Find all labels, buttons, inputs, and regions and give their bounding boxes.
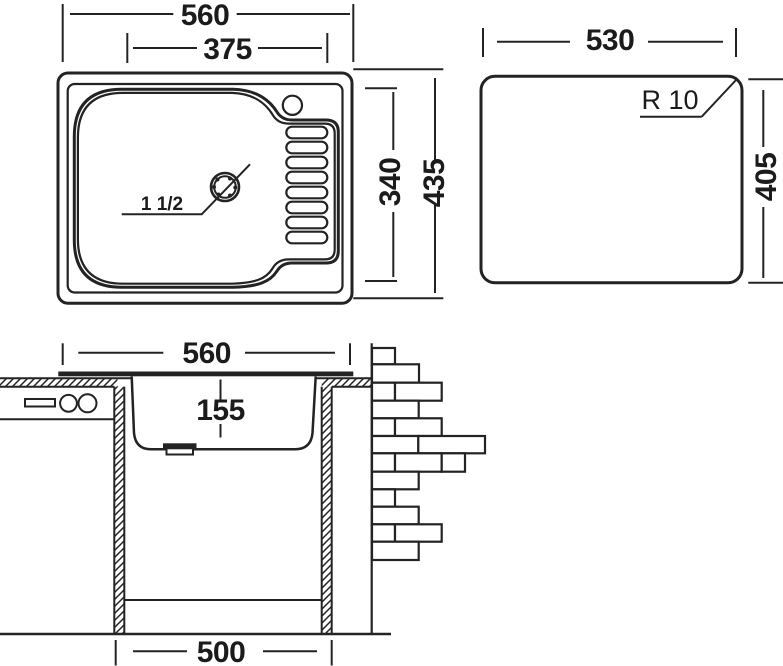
drain-body-section (167, 448, 194, 454)
corner-radius-callout: R 10 (640, 80, 737, 117)
handle-symbol (25, 399, 55, 407)
cutout-outline (481, 76, 742, 282)
cabinet-right-panel (322, 387, 332, 634)
dim-top-bowl-depth-label: 340 (374, 158, 407, 207)
worktop-left-hatch (0, 378, 118, 386)
bowl-outline-outer (74, 89, 338, 287)
adjacent-front-detail (0, 394, 114, 419)
cabinet-left-panel (114, 387, 124, 634)
sink-rim-section (58, 372, 353, 377)
sink-inner-edge (68, 84, 343, 293)
dim-section-bowl-depth: 155 (196, 380, 245, 438)
dim-section-cabinet-width: 500 (116, 636, 332, 666)
dim-section-bowl-depth-label: 155 (196, 394, 245, 427)
drain-size-label: 1 1/2 (141, 194, 183, 215)
drawing-svg: 1 1/2 560 375 340 (0, 0, 783, 666)
knob-symbol-left (60, 395, 77, 412)
drainer-ribs (286, 127, 327, 244)
dim-cutout-width-label: 530 (586, 24, 635, 57)
knob-symbol-right (79, 394, 97, 412)
top-view: 1 1/2 560 375 340 (58, 0, 451, 303)
dim-cutout-height-label: 405 (750, 153, 783, 202)
bowl-outline-inner (78, 93, 335, 284)
sink-outer-edge (58, 73, 352, 303)
section-view: 560 155 (0, 337, 485, 666)
dim-top-bowl-width-label: 375 (203, 33, 252, 66)
worktop-right-hatch (322, 378, 372, 386)
dim-top-overall-depth-label: 435 (418, 159, 451, 208)
dim-section-cabinet-width-label: 500 (197, 636, 246, 666)
cutout-view: 530 R 10 405 (481, 24, 783, 283)
brick-wall (372, 348, 485, 560)
corner-radius-label: R 10 (641, 85, 698, 115)
dim-top-bowl-depth: 340 (365, 88, 407, 281)
dim-top-overall-width-label: 560 (181, 0, 230, 32)
dim-section-overall-width-label: 560 (182, 337, 231, 370)
dim-section-overall-width: 560 (63, 337, 350, 370)
tap-hole (283, 96, 302, 115)
dim-cutout-width: 530 (483, 24, 736, 57)
drain-strainer (211, 173, 239, 201)
dim-cutout-height: 405 (748, 79, 783, 282)
sink-technical-drawing: 1 1/2 560 375 340 (0, 0, 783, 666)
dim-top-bowl-width: 375 (127, 33, 327, 66)
